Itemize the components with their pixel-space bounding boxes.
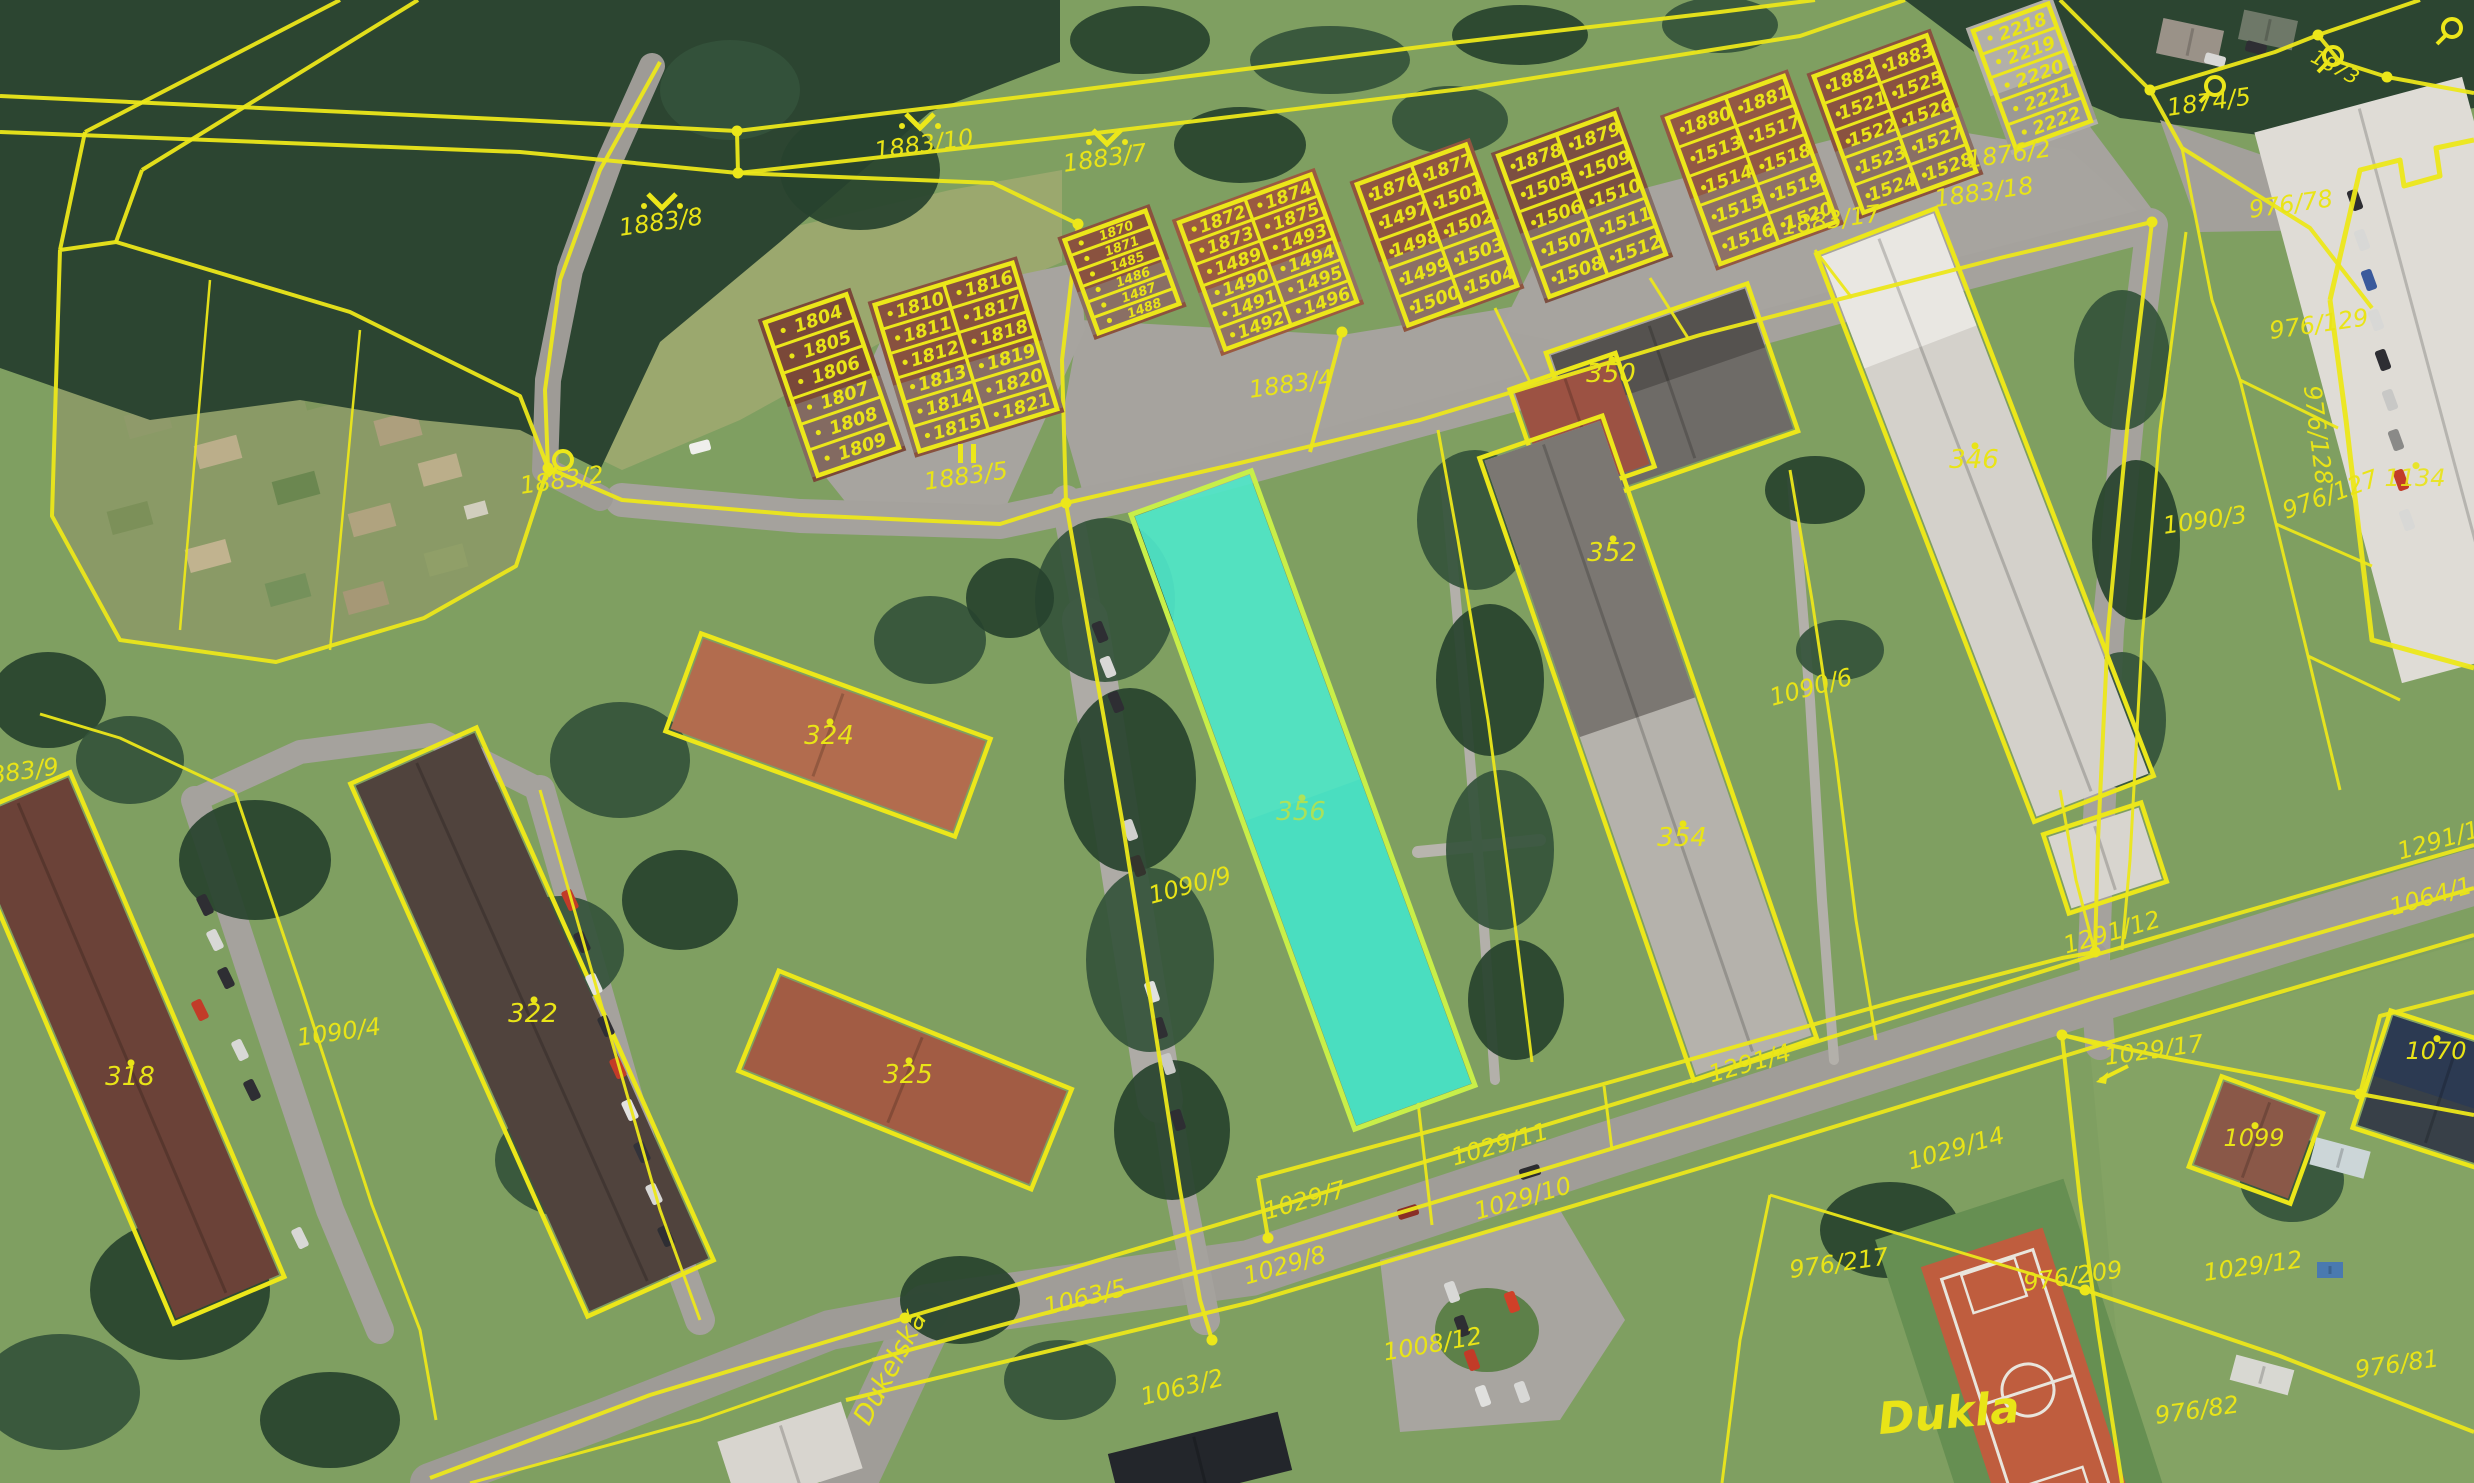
boundary-node xyxy=(1073,219,1084,230)
parcel-label[interactable]: 1134 xyxy=(2384,462,2445,492)
parcel-label[interactable]: 346 xyxy=(1949,442,1999,475)
tree-clump xyxy=(622,850,738,950)
tree-clump xyxy=(966,558,1054,638)
boundary-node xyxy=(2057,1030,2068,1041)
parcel-label[interactable]: 325 xyxy=(883,1057,933,1090)
svg-text:1134: 1134 xyxy=(2384,464,2445,492)
tree-clump xyxy=(1070,6,1210,74)
svg-text:350: 350 xyxy=(1586,359,1636,389)
parcel-label[interactable]: 356 xyxy=(1276,794,1326,827)
parcel-boundary xyxy=(737,131,738,173)
boundary-node xyxy=(2147,217,2158,228)
boundary-node xyxy=(732,126,743,137)
boundary-node xyxy=(733,168,744,179)
boundary-node xyxy=(2313,30,2324,41)
trampoline xyxy=(2317,1262,2343,1278)
cadastral-map[interactable]: 1804180518061807180818091810181118121813… xyxy=(0,0,2474,1483)
boundary-node xyxy=(2382,72,2393,83)
tree-clump xyxy=(1468,940,1564,1060)
svg-text:352: 352 xyxy=(1587,538,1637,568)
svg-text:356: 356 xyxy=(1276,797,1326,827)
svg-text:1099: 1099 xyxy=(2223,1124,2284,1152)
tree-clump xyxy=(2074,290,2170,430)
boundary-node xyxy=(1337,327,1348,338)
svg-text:325: 325 xyxy=(883,1060,933,1090)
boundary-node xyxy=(1061,498,1072,509)
tree-clump xyxy=(780,110,940,230)
boundary-node xyxy=(1263,1233,1274,1244)
tree-clump xyxy=(1174,107,1306,183)
boundary-node xyxy=(2355,1089,2366,1100)
tree-clump xyxy=(260,1372,400,1468)
parcel-label[interactable]: 318 xyxy=(105,1059,155,1092)
parcel-label[interactable]: 1099 xyxy=(2223,1122,2284,1152)
parcel-label[interactable]: 322 xyxy=(508,996,558,1029)
svg-text:322: 322 xyxy=(508,999,558,1029)
svg-text:1070: 1070 xyxy=(2405,1037,2466,1065)
svg-text:354: 354 xyxy=(1657,823,1707,853)
svg-text:318: 318 xyxy=(105,1062,155,1092)
map-canvas[interactable]: 1804180518061807180818091810181118121813… xyxy=(0,0,2474,1483)
tree-clump xyxy=(1765,456,1865,524)
parcel-label[interactable]: 1070 xyxy=(2405,1035,2466,1065)
svg-text:324: 324 xyxy=(804,721,854,751)
parcel-label[interactable]: 352 xyxy=(1587,535,1637,568)
road xyxy=(2094,958,2100,1045)
tree-clump xyxy=(1004,1340,1116,1420)
parcel-label[interactable]: 354 xyxy=(1657,820,1707,853)
tree-clump xyxy=(2092,460,2180,620)
parcel-label[interactable]: 350 xyxy=(1586,356,1636,389)
tree-clump xyxy=(1064,688,1196,872)
svg-text:346: 346 xyxy=(1949,445,1999,475)
boundary-node xyxy=(1207,1335,1218,1346)
parcel-label[interactable]: 324 xyxy=(804,718,854,751)
boundary-node xyxy=(2145,85,2156,96)
tree-clump xyxy=(1446,770,1554,930)
